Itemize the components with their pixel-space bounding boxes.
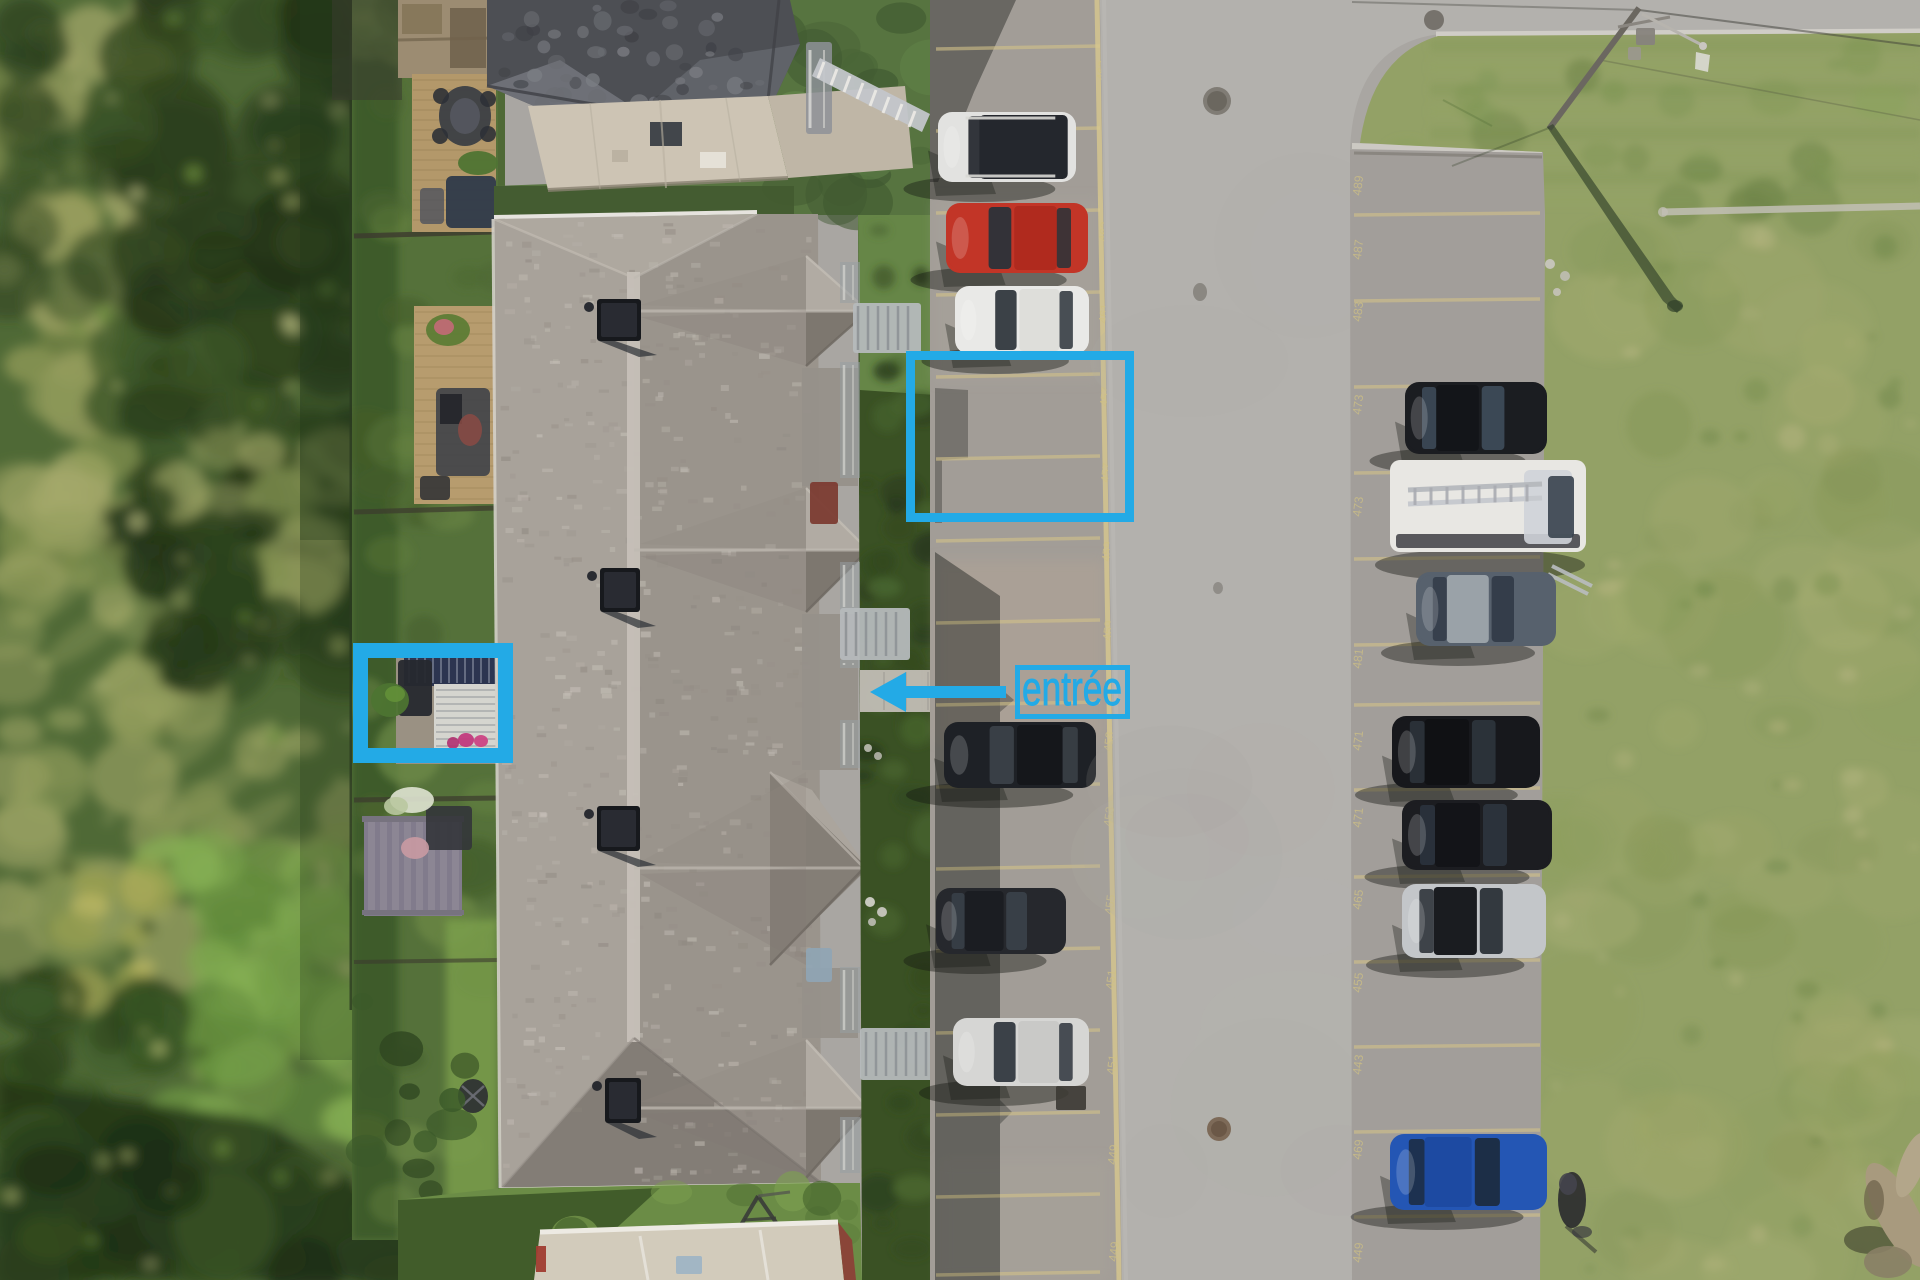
svg-text:487: 487 — [1350, 238, 1366, 260]
svg-text:entrée: entrée — [1022, 663, 1122, 716]
svg-text:489: 489 — [1350, 174, 1366, 196]
svg-text:483: 483 — [1350, 300, 1366, 322]
svg-text:449: 449 — [1106, 1240, 1122, 1262]
svg-text:473: 473 — [1350, 495, 1366, 517]
svg-text:455: 455 — [1350, 971, 1366, 993]
svg-text:471: 471 — [1350, 729, 1366, 751]
svg-text:471: 471 — [1350, 806, 1366, 828]
svg-text:443: 443 — [1350, 1053, 1366, 1075]
svg-text:449: 449 — [1105, 1143, 1121, 1165]
svg-text:465: 465 — [1350, 888, 1366, 910]
svg-text:449: 449 — [1350, 1241, 1366, 1263]
svg-text:469: 469 — [1350, 1138, 1366, 1160]
svg-text:451: 451 — [1104, 1053, 1120, 1075]
svg-text:481: 481 — [1350, 647, 1366, 669]
svg-text:473: 473 — [1350, 393, 1366, 415]
